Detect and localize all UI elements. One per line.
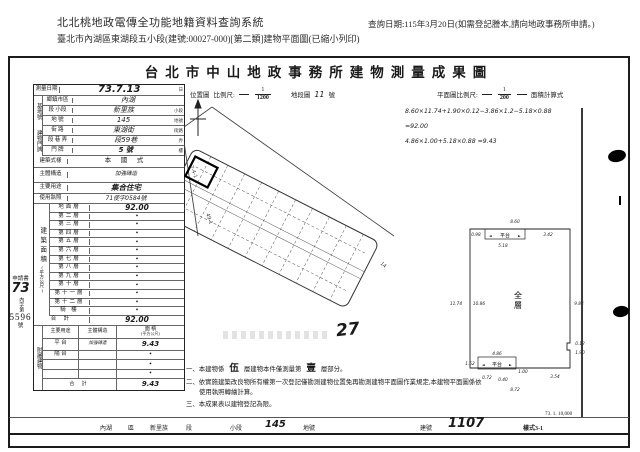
strip-district-suffix: 區 [128,423,134,432]
annex-area: • [117,370,184,377]
row-suffix: 小段 [174,108,184,114]
table-row: 鄉鎮市區 內湖 [43,96,184,106]
annex-use: 陽 台 [43,351,79,360]
query-date: 查詢日期:115年3月20日(如需登記謄本,請向地政事務所申請。) [368,18,595,30]
survey-date-value: 73.7.13 [60,85,179,95]
svg-text:3.54: 3.54 [550,374,560,380]
table-row: 街 路 東湖街 街路 [43,126,184,136]
row-label: 使用執照 [34,196,68,202]
annex-group-label: 附屬建物 [34,326,43,391]
strip-form-code: 樣式3-1 [523,423,543,432]
strip-building-number: 1107 [448,416,484,431]
row-value: 段59巷 [73,137,179,144]
svg-text:0.40: 0.40 [498,377,508,383]
floor-label: 第六層 [50,248,90,254]
building-number-handwritten: 27 [335,319,361,341]
annex-total-row: 合 計 9.43 [43,379,184,390]
location-map: 7-4-1 49-1 14 [184,96,456,308]
parcel-block [184,148,379,308]
floor-row: 第十二層• [50,299,184,308]
note-1-text: 層建物本件僅測量第 [244,366,302,373]
address-section: 建物門牌 街 路 東湖街 街路 段 巷 弄 段59巷 弄 門 牌 5 號 樓 [34,126,184,156]
row-value: 新里族 [73,107,174,114]
dash [482,94,492,95]
annex-h-area-2: (平方公尺) [141,332,160,336]
application-suffix: 號 [9,323,32,329]
floor-value: • [90,247,184,254]
survey-date-row: 測量日期 73.7.13 日 [34,85,184,96]
row-label: 建築式樣 [34,159,68,165]
floor-label: 地面層 [50,205,90,211]
strip-building-label: 建號 [420,423,432,432]
strip-section: 新里族 [150,423,168,432]
application-serial: 5596 [9,313,32,323]
survey-date-suffix: 日 [179,87,185,93]
plan-scale-fraction: 1 200 [498,87,511,101]
alley-label: 14 [379,261,388,270]
floor-area-vunit: (平方公尺) [39,265,44,293]
strip-district: 內湖 [100,423,112,432]
floor-label: 第十層 [50,282,90,288]
top-platform-label: 平台 [500,232,510,239]
floor-area-group-label: 建築面積 (平方公尺) [34,204,50,316]
svg-text:5.18: 5.18 [498,243,508,249]
site-section: 基地號 鄉鎮市區 內湖 段 小段 新里族 小段 地 號 145 地號 [34,96,184,126]
table-row: 地 號 145 地號 [43,116,184,126]
annex-row: • [43,360,184,370]
table-row: 段 小段 新里族 小段 [43,106,184,116]
table-row: 段 巷 弄 段59巷 弄 [43,136,184,146]
structure-row: 主體構造 加強磚造 [34,168,184,183]
row-label: 鄉鎮市區 [43,98,73,104]
row-value: 71使字0584號 [68,196,184,202]
annex-struct [79,370,117,379]
note-2: 二、依實施建築改良物所有權第一次登記僅勘測建物位置免再勘測建物平面圖作業規定,本… [186,378,484,397]
floor-value: • [90,299,184,306]
floor-value: • [90,264,184,271]
row-value: 145 [73,117,174,124]
floor-area-vlabel: 建築面積 [38,227,45,265]
row-label: 主要用途 [34,185,68,191]
form-title: 台北市中山地政事務所建物測量成果圖 [8,61,630,81]
svg-text:1.00: 1.00 [518,369,528,375]
floor-label: 第四層 [50,231,90,237]
arrow-left-icon: ◄ [489,234,492,238]
row-label: 街 路 [43,128,73,134]
style-row: 建築式樣 本 國 式 [34,156,184,168]
svg-text:11.74: 11.74 [450,301,463,307]
strip-subsection-suffix: 小段 [230,423,242,432]
floor-row: 第三層• [50,221,184,230]
floor-value: • [90,307,184,314]
site-group-label: 基地號 [34,96,43,126]
north-arrow-icon [190,100,206,136]
annex-row: • [43,370,184,380]
annex-use: 平 台 [43,339,79,350]
document-subtitle: 臺北市內湖區東湖段五小段(建號:00027-000)[第二類]建物平面圖(已縮小… [57,32,359,45]
svg-text:9.84: 9.84 [574,301,584,307]
floor-row: 第十層• [50,281,184,290]
area-formula-label: 面積計算式 [531,89,564,99]
application-year: 73 [9,282,32,296]
note-1: 一、本建物係伍層建物本件僅測量第壹層部分。 [186,362,484,376]
annex-total-label: 合 計 [43,379,117,390]
annex-struct: 加強磚造 [79,339,117,350]
strip-section-suffix: 段 [186,423,192,432]
annex-section: 附屬建物 主要用途 主體構造 面 積 (平方公尺) 平 台 加強磚造 9.43 … [34,326,184,391]
loc-scale-num: 1 [261,87,264,94]
row-label: 段 巷 弄 [43,138,73,144]
row-label: 門 牌 [43,148,73,154]
floor-label: 第七層 [50,257,90,263]
row-value: 集合住宅 [68,184,184,192]
floor-label: 騎 樓 [50,308,90,314]
bottom-platform-label: 平台 [492,361,502,368]
floor-row: 第五層• [50,238,184,247]
annex-struct [79,360,117,369]
room-label-2: 層 [514,301,522,310]
floor-row: 第十一層• [50,290,184,299]
svg-text:8.72: 8.72 [510,387,520,393]
dash [239,94,249,95]
application-word: 內字第 [18,297,24,312]
annex-area: 9.43 [117,341,184,348]
svg-text:4.86: 4.86 [492,351,502,357]
system-title: 北北桃地政電傳全功能地籍資料查詢系統 [57,14,264,30]
strip-bottom-line [9,433,629,435]
floor-label: 第五層 [50,239,90,245]
annex-row: 陽 台 • [43,351,184,361]
strip-top-line [9,417,629,418]
annex-h-struct: 主體構造 [79,326,117,338]
row-label: 段 小段 [43,108,73,114]
floor-value: 92.00 [90,204,184,212]
row-suffix: 地號 [174,118,184,124]
row-value: 5 號 [73,147,179,154]
arrow-right-icon: ► [509,363,512,367]
floor-row: 第八層• [50,264,184,273]
inner-rule [581,108,583,418]
total-value: 92.00 [90,316,184,324]
annex-area: • [117,351,184,358]
row-label: 地 號 [43,118,73,124]
faint-stamp [223,331,327,339]
floor-value: • [90,256,184,263]
note-1-text: 層部分。 [321,366,347,373]
notes-block: 一、本建物係伍層建物本件僅測量第壹層部分。 二、依實施建築改良物所有權第一次登記… [186,362,484,410]
row-value: 東湖街 [73,127,174,134]
row-label: 主體構造 [34,172,68,178]
floor-label: 第三層 [50,222,90,228]
floor-label: 第十二層 [50,300,90,306]
table-row: 門 牌 5 號 樓 [43,146,184,156]
floor-value: • [90,239,184,246]
dash [517,94,527,95]
floor-value: • [90,221,184,228]
note-1-level: 壹 [306,364,316,374]
annex-total-value: 9.43 [117,381,184,388]
annex-row: 平 台 加強磚造 9.43 [43,339,184,351]
row-value: 加強磚造 [68,172,184,178]
row-value: 內湖 [73,97,183,104]
attribute-table: 測量日期 73.7.13 日 基地號 鄉鎮市區 內湖 段 小段 新里族 小段 地… [33,84,185,391]
row-value: 本 國 式 [68,158,184,165]
area-total-row: 合 計 92.00 [34,316,184,326]
floor-value: • [90,273,184,280]
floor-label: 第二層 [50,214,90,220]
floor-value: • [90,282,184,289]
svg-text:8.60: 8.60 [510,219,520,225]
use-row: 主要用途 集合住宅 [34,183,184,194]
ink-mark [619,196,621,205]
floor-row: 騎 樓• [50,307,184,316]
row-suffix: 街路 [174,128,184,134]
floor-label: 第九層 [50,274,90,280]
address-group-label: 建物門牌 [34,126,43,156]
room-label-1: 全 [514,290,522,300]
floor-row: 第六層• [50,247,184,256]
annex-struct [79,351,117,360]
plan-scale-den: 200 [498,94,511,102]
floor-value: • [90,230,184,237]
total-label: 合 計 [34,317,90,323]
floor-row: 第七層• [50,256,184,265]
note-1-floors: 伍 [229,364,239,374]
svg-text:0.98: 0.98 [471,232,481,238]
annex-header-row: 主要用途 主體構造 面 積 (平方公尺) [43,326,184,339]
floor-row: 地面層92.00 [50,204,184,213]
strip-parcel: 145 [265,419,286,430]
screenshot-root: { "header": { "system_title": "北北桃地政電傳全功… [0,0,640,452]
annex-h-area: 面 積 (平方公尺) [117,326,184,338]
floor-row: 第二層• [50,213,184,222]
plan-scale-num: 1 [503,87,506,94]
note-1-text: 一、本建物係 [186,366,224,373]
print-code: 73. 1. 10,000 [545,411,572,417]
annex-use [43,370,79,379]
strip-parcel-suffix: 地號 [303,423,315,432]
arrow-right-icon: ► [518,234,521,238]
license-row: 使用執照 71使字0584號 [34,194,184,204]
floor-area-section: 建築面積 (平方公尺) 地面層92.00 第二層• 第三層• 第四層• 第五層•… [34,204,184,316]
svg-text:10.86: 10.86 [473,301,486,307]
annex-h-use: 主要用途 [43,326,79,338]
note-3: 三、本成果表以建物登記為限。 [186,400,484,410]
annex-use [43,360,79,369]
application-number-block: 申請書 73 內字第 5596 號 [9,276,32,329]
floor-label: 第八層 [50,265,90,271]
svg-text:3.42: 3.42 [543,232,553,238]
floor-value: • [90,213,184,220]
annex-area: • [117,361,184,368]
floor-value: • [90,290,184,297]
floor-label: 第十一層 [50,291,90,297]
survey-date-label: 測量日期 [34,87,60,93]
